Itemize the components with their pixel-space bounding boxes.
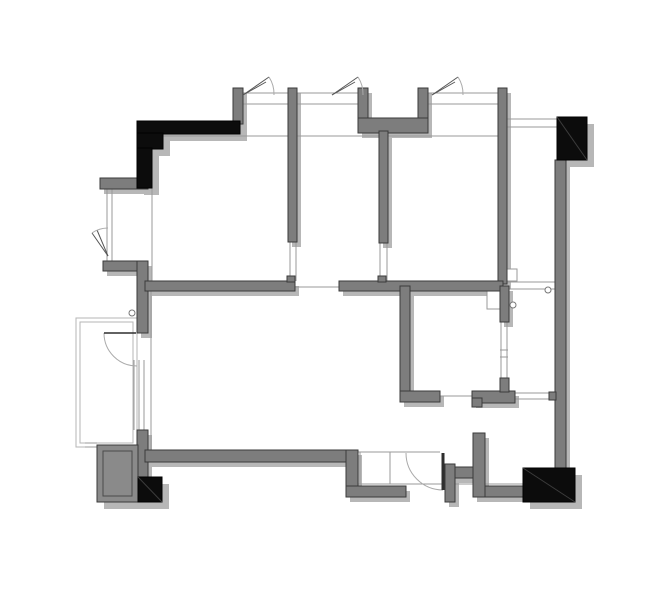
wall-entry-link [455,467,473,478]
wall-bottom-right [485,486,523,497]
shadow-layer [104,93,594,509]
wall-bottom-main [145,450,358,462]
black-layer [137,117,587,502]
wall-partition-top-2 [379,131,388,243]
wall-middle-left [145,281,295,291]
wall-bath-bottom-left [400,391,440,402]
wall-duct-bottom [358,118,428,133]
wall-middle-right-nub [378,276,386,282]
fixture-shower-corner [487,289,500,309]
wall-middle-left-nub [287,276,295,282]
wall-right-main [555,160,566,468]
wall-bath-divider-bot [500,378,509,392]
wall-entry-stub [445,464,455,502]
wall-pier-top-right [498,88,507,284]
window-casement-1-arc [269,77,274,95]
wall-bath-left-v [400,286,410,396]
door-pivot-mark-right [545,287,551,293]
balcony-rail-inner [80,322,133,443]
wall-right-nub [549,392,556,400]
wall-pier-top-1 [233,88,243,124]
balcony-rail-outer [76,318,137,447]
wall-bath-notch [472,398,482,407]
column-nw-bar [137,121,240,134]
balcony-layer [76,318,137,447]
window-casement-left-arc [92,228,108,233]
door-pivot-mark-left [129,310,135,316]
column-nw-leg [137,148,152,188]
wall-left-mid-v [137,261,148,333]
door-pivot-mark-bath [510,302,516,308]
window-casement-3-arc [458,77,463,95]
wall-bath-divider-top [500,286,509,322]
wall-bottom-lower [346,486,406,497]
wall-entry-tall [473,433,485,497]
floor-plan-page [0,0,670,603]
floor-plan-canvas [0,0,670,603]
column-nw-step [137,133,163,149]
wall-partition-top-1 [288,88,297,242]
wall-middle-right [339,281,503,291]
door-balcony-swing-arc [104,333,137,366]
